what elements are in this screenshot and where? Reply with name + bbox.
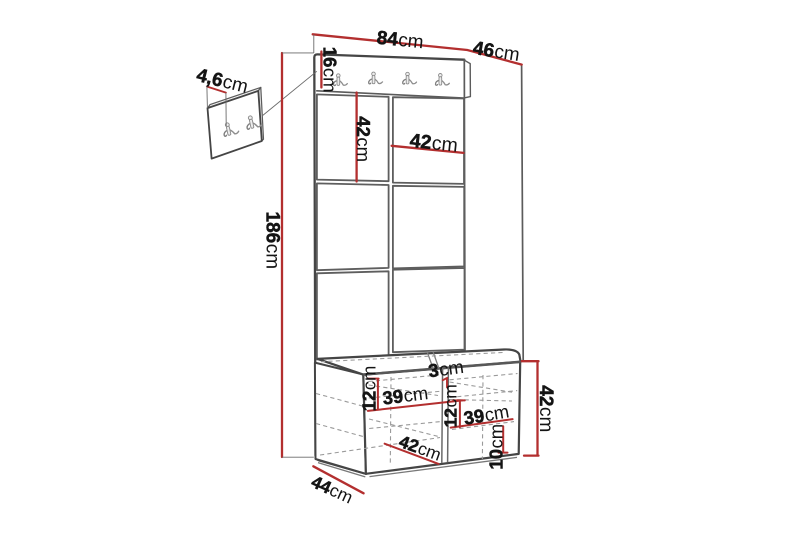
svg-text:16cm: 16cm [319, 47, 340, 93]
svg-text:12cm: 12cm [440, 384, 460, 427]
svg-text:42cm: 42cm [535, 385, 556, 432]
svg-text:42cm: 42cm [353, 116, 374, 162]
svg-text:12cm: 12cm [358, 366, 379, 412]
svg-text:10cm: 10cm [486, 424, 507, 470]
svg-text:186cm: 186cm [262, 212, 283, 270]
